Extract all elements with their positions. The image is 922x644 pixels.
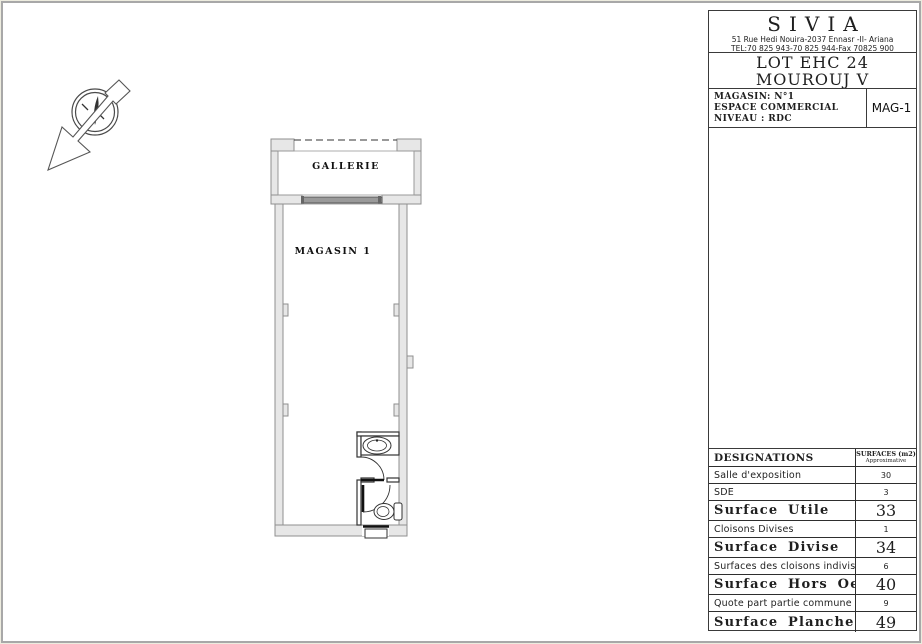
north-arrow-icon [48, 80, 130, 170]
project-line1: LOT EHC 24 [709, 54, 916, 71]
designations-header: DESIGNATIONS [709, 452, 855, 464]
row-label: SDE [709, 487, 855, 498]
row-value: 3 [855, 484, 916, 500]
row-label: Quote part partie commune [709, 598, 855, 609]
row-value: 6 [855, 558, 916, 574]
row-label: Surfaces des cloisons indivises [709, 561, 855, 572]
row-value: 1 [855, 521, 916, 537]
table-row: Surface Utile33 [709, 501, 916, 521]
unit-info: MAGASIN: N°1 ESPACE COMMERCIAL NIVEAU : … [709, 89, 916, 128]
company-phone: TEL:70 825 943-70 825 944-Fax 70825 900 [709, 44, 916, 53]
table-header-row: DESIGNATIONS SURFACES (m2) Approximative [709, 449, 916, 467]
company-header: SIVIA 51 Rue Hedi Nouira-2037 Ennasr -II… [709, 11, 916, 53]
unit-line2: ESPACE COMMERCIAL [714, 103, 866, 114]
unit-code: MAG-1 [866, 89, 916, 127]
row-label: Salle d'exposition [709, 470, 855, 481]
row-value: 9 [855, 595, 916, 611]
table-row: Surface Plancher49 [709, 612, 916, 632]
table-row: SDE3 [709, 484, 916, 501]
storefront-window [301, 196, 382, 204]
row-label: Surface Plancher [709, 615, 855, 630]
row-label: Cloisons Divises [709, 524, 855, 535]
sink-icon [361, 436, 399, 455]
table-row: Surface Hors Oeuvre40 [709, 575, 916, 595]
project-line2: MOUROUJ V [709, 71, 916, 88]
table-row: Surface Divise34 [709, 538, 916, 558]
gallery-room-label: GALLERIE [296, 161, 396, 172]
site-plan-cell [709, 128, 916, 449]
row-label: Surface Divise [709, 540, 855, 555]
unit-description: MAGASIN: N°1 ESPACE COMMERCIAL NIVEAU : … [709, 89, 866, 127]
row-value: 49 [855, 612, 916, 632]
project-title: LOT EHC 24 MOUROUJ V [709, 53, 916, 89]
row-value: 30 [855, 467, 916, 483]
entry-door-bottom [362, 526, 389, 538]
bathroom [357, 432, 402, 538]
table-row: Surfaces des cloisons indivises6 [709, 558, 916, 575]
row-label: Surface Hors Oeuvre [709, 577, 855, 592]
row-value: 33 [855, 501, 916, 520]
surfaces-table: DESIGNATIONS SURFACES (m2) Approximative… [709, 449, 916, 632]
company-name: SIVIA [709, 13, 916, 35]
table-row: Quote part partie commune9 [709, 595, 916, 612]
gallery-inner-outline [278, 151, 414, 195]
title-block: SIVIA 51 Rue Hedi Nouira-2037 Ennasr -II… [708, 10, 917, 631]
company-address: 51 Rue Hedi Nouira-2037 Ennasr -II- Aria… [709, 35, 916, 44]
table-row: Cloisons Divises1 [709, 521, 916, 538]
unit-line3: NIVEAU : RDC [714, 114, 866, 125]
row-value: 40 [855, 575, 916, 594]
row-label: Surface Utile [709, 503, 855, 518]
floor-plan [271, 139, 421, 538]
magasin-room-label: MAGASIN 1 [283, 246, 383, 257]
door-arc-sink [361, 457, 384, 480]
row-value: 34 [855, 538, 916, 557]
unit-line1: MAGASIN: N°1 [714, 92, 866, 103]
surfaces-header: SURFACES (m2) Approximative [855, 449, 916, 466]
toilet-icon [374, 503, 402, 520]
table-row: Salle d'exposition30 [709, 467, 916, 484]
